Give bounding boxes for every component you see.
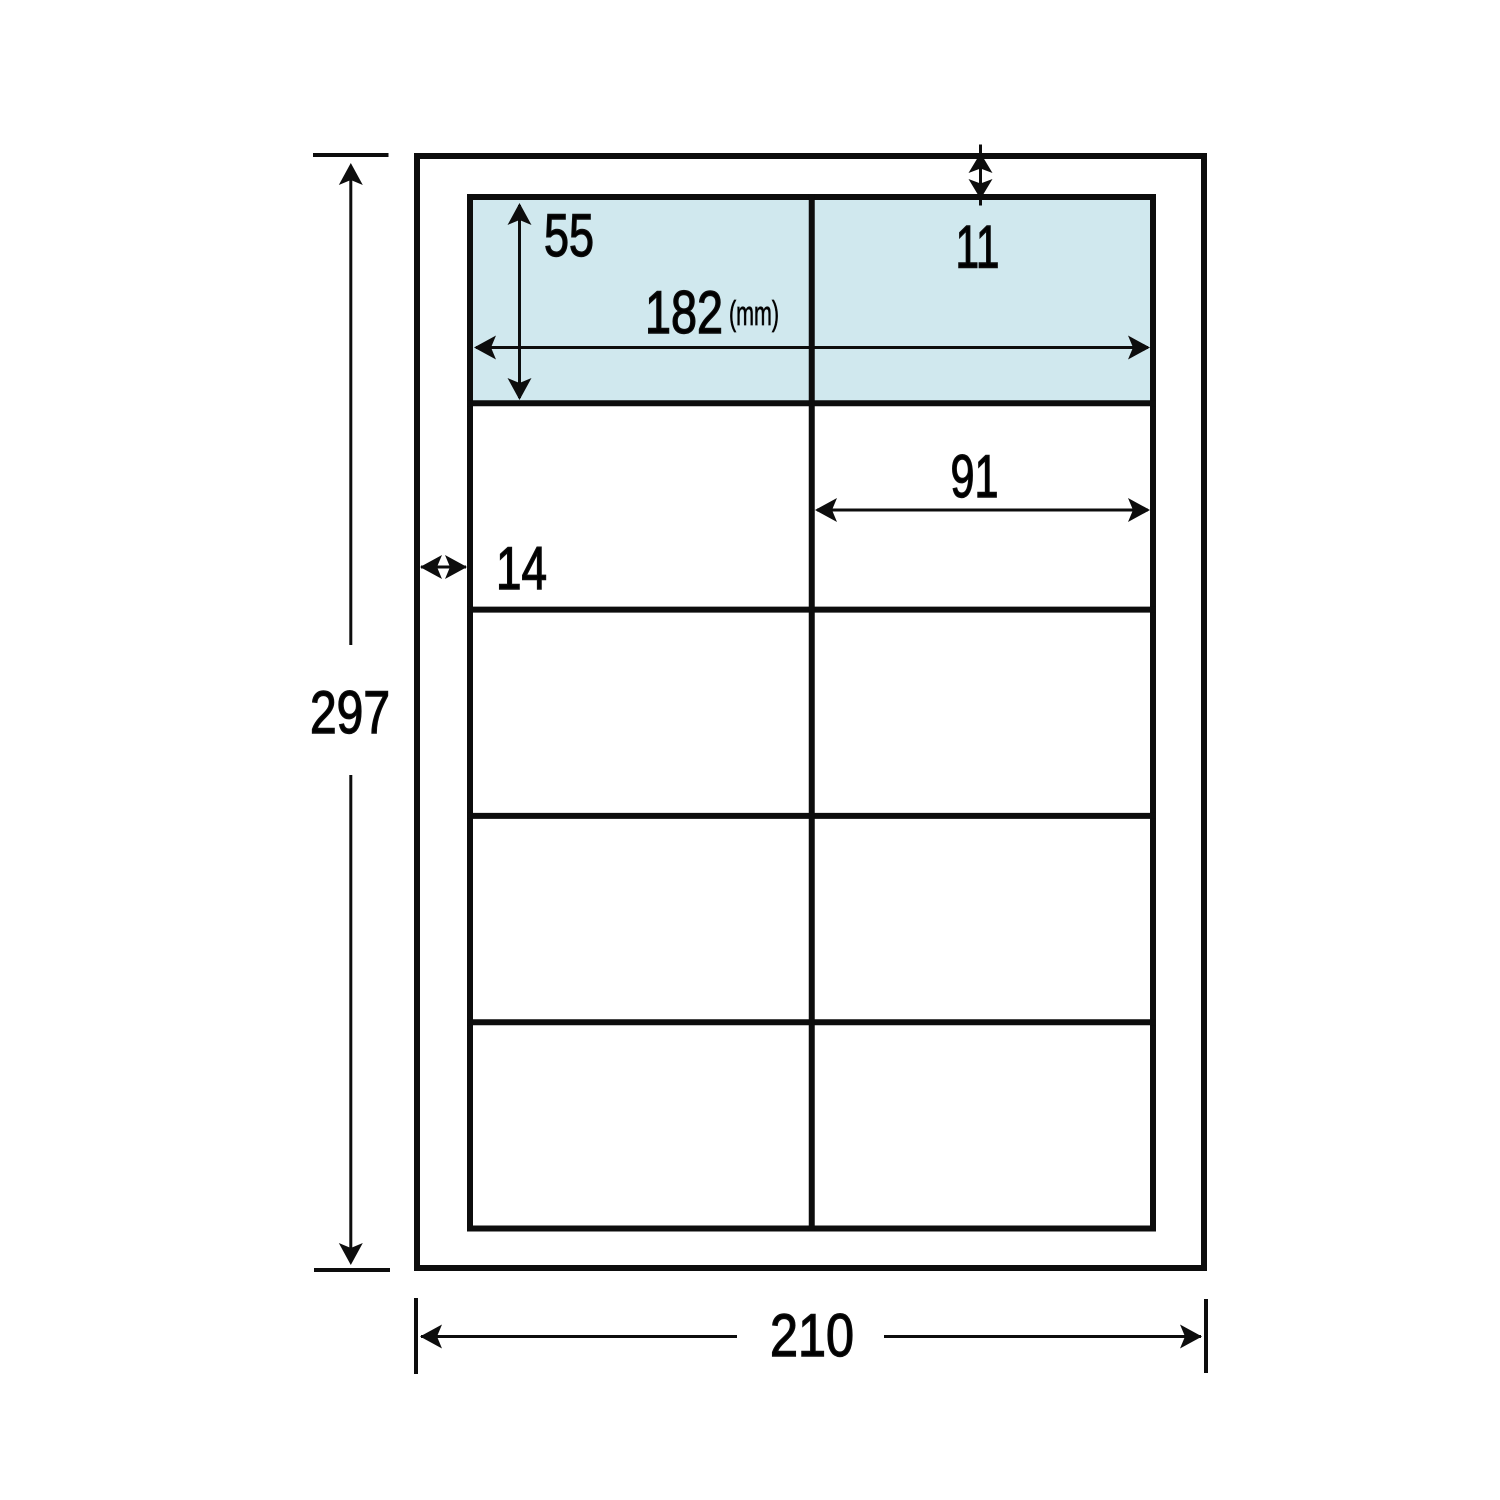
svg-text:14: 14 <box>496 535 547 602</box>
svg-text:(mm): (mm) <box>729 295 779 333</box>
svg-text:297: 297 <box>310 679 390 746</box>
svg-text:182: 182 <box>645 279 723 346</box>
svg-text:55: 55 <box>544 202 594 269</box>
svg-text:11: 11 <box>956 214 1000 281</box>
svg-text:91: 91 <box>951 443 999 510</box>
svg-text:210: 210 <box>770 1302 854 1369</box>
